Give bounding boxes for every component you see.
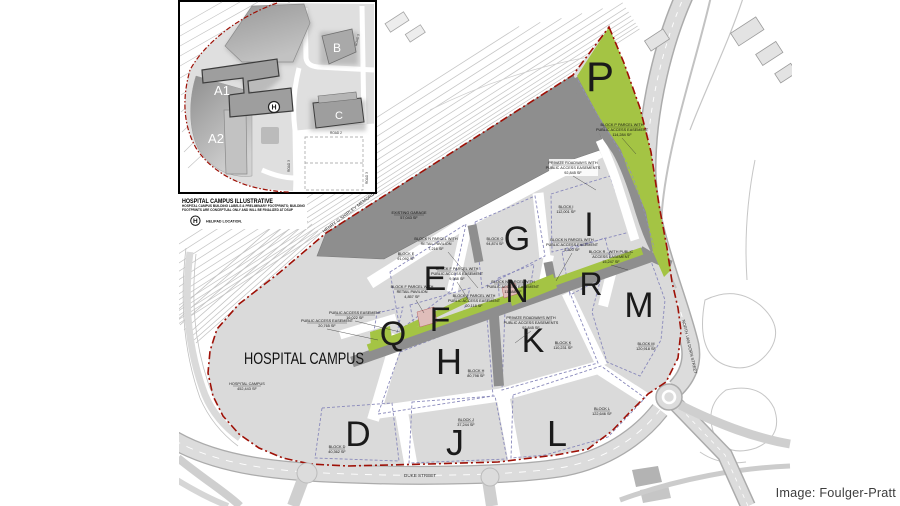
svg-text:PRIVATE ROADWAYS WITH: PRIVATE ROADWAYS WITH — [548, 161, 597, 165]
svg-text:BLOCK N PARCEL WITH: BLOCK N PARCEL WITH — [550, 238, 594, 242]
svg-text:PUBLIC ACCESS EASEMENT: PUBLIC ACCESS EASEMENT — [329, 311, 382, 315]
svg-text:BLOCK G: BLOCK G — [487, 237, 504, 241]
svg-text:9,588 SF: 9,588 SF — [449, 277, 465, 281]
svg-text:RETAIL PAVILION: RETAIL PAVILION — [421, 242, 452, 246]
svg-text:BLOCK P PARCEL WITH: BLOCK P PARCEL WITH — [601, 123, 644, 127]
svg-text:D: D — [345, 415, 370, 454]
svg-text:BLOCK N PARCEL WITH: BLOCK N PARCEL WITH — [491, 280, 535, 284]
svg-text:80,798 SF: 80,798 SF — [467, 374, 485, 378]
svg-text:110,231 SF: 110,231 SF — [553, 346, 573, 350]
svg-text:BLOCK L: BLOCK L — [594, 407, 610, 411]
svg-text:FOOTPRINTS ARE CONCEPTUAL ONLY: FOOTPRINTS ARE CONCEPTUAL ONLY AND WILL … — [182, 208, 294, 212]
svg-text:PUBLIC ACCESS EASEMENT: PUBLIC ACCESS EASEMENT — [596, 128, 649, 132]
svg-text:BLOCK K: BLOCK K — [555, 341, 572, 345]
svg-text:7,216 SF: 7,216 SF — [428, 247, 444, 251]
svg-text:452,443 SF: 452,443 SF — [237, 387, 257, 391]
svg-text:HOSPITAL CAMPUS: HOSPITAL CAMPUS — [244, 349, 364, 368]
svg-text:20,118 SF: 20,118 SF — [465, 304, 483, 308]
svg-text:BLOCK J: BLOCK J — [458, 418, 474, 422]
svg-text:G: G — [504, 220, 530, 258]
svg-text:ROAD 3: ROAD 3 — [287, 160, 291, 172]
svg-text:Q: Q — [380, 315, 406, 353]
svg-text:BLOCK F PARCEL WITH: BLOCK F PARCEL WITH — [453, 294, 496, 298]
svg-text:L: L — [547, 413, 567, 454]
svg-text:20,765 SF: 20,765 SF — [318, 324, 336, 328]
svg-text:BLOCK I: BLOCK I — [559, 205, 574, 209]
svg-text:PUBLIC ACCESS EASEMENT: PUBLIC ACCESS EASEMENT — [301, 319, 354, 323]
svg-text:B: B — [333, 41, 341, 55]
svg-text:H: H — [271, 105, 276, 112]
svg-text:92,845 SF: 92,845 SF — [522, 326, 540, 330]
svg-text:J: J — [446, 422, 464, 463]
svg-text:DUKE STREET: DUKE STREET — [404, 473, 436, 478]
svg-text:ACCESS EASEMENT: ACCESS EASEMENT — [592, 255, 630, 259]
svg-text:ROAD 2: ROAD 2 — [330, 131, 342, 135]
svg-text:120,918 SF: 120,918 SF — [636, 347, 656, 351]
svg-text:PUBLIC ACCESS EASEMENTS: PUBLIC ACCESS EASEMENTS — [546, 166, 601, 170]
svg-text:40,362 SF: 40,362 SF — [328, 450, 346, 454]
svg-text:H: H — [436, 341, 462, 382]
svg-text:H: H — [193, 218, 198, 225]
svg-text:BLOCK E: BLOCK E — [398, 252, 415, 256]
svg-text:PUBLIC ACCESS EASEMENT: PUBLIC ACCESS EASEMENT — [546, 243, 599, 247]
svg-text:BLOCK D: BLOCK D — [329, 445, 346, 449]
svg-text:57,043 SF: 57,043 SF — [400, 216, 418, 220]
svg-text:15,247 SF: 15,247 SF — [602, 260, 620, 264]
svg-text:BLOCK N PARCEL WITH: BLOCK N PARCEL WITH — [414, 237, 458, 241]
svg-text:122,646 SF: 122,646 SF — [592, 412, 612, 416]
svg-text:91,092 SF: 91,092 SF — [397, 257, 415, 261]
svg-text:114,284 SF: 114,284 SF — [612, 133, 632, 137]
svg-text:RETAIL PAVILION: RETAIL PAVILION — [397, 290, 428, 294]
svg-text:A1: A1 — [214, 83, 230, 98]
svg-text:BLOCK R - WITH PUBLIC: BLOCK R - WITH PUBLIC — [589, 250, 634, 254]
svg-text:C: C — [335, 110, 343, 122]
svg-text:PUBLIC ACCESS EASEMENTS: PUBLIC ACCESS EASEMENTS — [504, 321, 559, 325]
svg-text:F: F — [430, 301, 451, 339]
svg-text:11,588 SF: 11,588 SF — [504, 290, 522, 294]
svg-text:ROAD 3: ROAD 3 — [365, 172, 369, 184]
svg-text:5,320 SF: 5,320 SF — [564, 248, 580, 252]
svg-text:BLOCK M: BLOCK M — [637, 342, 654, 346]
svg-text:37,244 SF: 37,244 SF — [457, 423, 475, 427]
svg-text:P: P — [586, 53, 614, 100]
svg-text:HOSPITAL CAMPUS: HOSPITAL CAMPUS — [229, 382, 265, 386]
svg-text:PUBLIC ACCESS EASEMENT: PUBLIC ACCESS EASEMENT — [487, 285, 540, 289]
svg-text:92,845 SF: 92,845 SF — [564, 171, 582, 175]
svg-text:PUBLIC ACCESS EASEMENT: PUBLIC ACCESS EASEMENT — [431, 272, 484, 276]
svg-text:PRIVATE ROADWAYS WITH: PRIVATE ROADWAYS WITH — [506, 316, 555, 320]
svg-text:BLOCK F PARCEL WITH: BLOCK F PARCEL WITH — [391, 285, 434, 289]
svg-text:A2: A2 — [208, 131, 224, 146]
svg-text:EXISTING GARAGE: EXISTING GARAGE — [391, 211, 426, 215]
svg-text:112,001 SF: 112,001 SF — [556, 210, 576, 214]
svg-text:PUBLIC ACCESS EASEMENT: PUBLIC ACCESS EASEMENT — [448, 299, 501, 303]
svg-text:4,857 SF: 4,857 SF — [404, 295, 420, 299]
svg-text:94,874 SF: 94,874 SF — [486, 242, 504, 246]
svg-text:HELIPAD LOCATION.: HELIPAD LOCATION. — [206, 219, 242, 223]
svg-text:R: R — [579, 266, 602, 302]
svg-text:BLOCK H: BLOCK H — [468, 369, 485, 373]
svg-text:BLOCK F PARCEL WITH: BLOCK F PARCEL WITH — [436, 267, 479, 271]
svg-text:M: M — [624, 286, 653, 325]
